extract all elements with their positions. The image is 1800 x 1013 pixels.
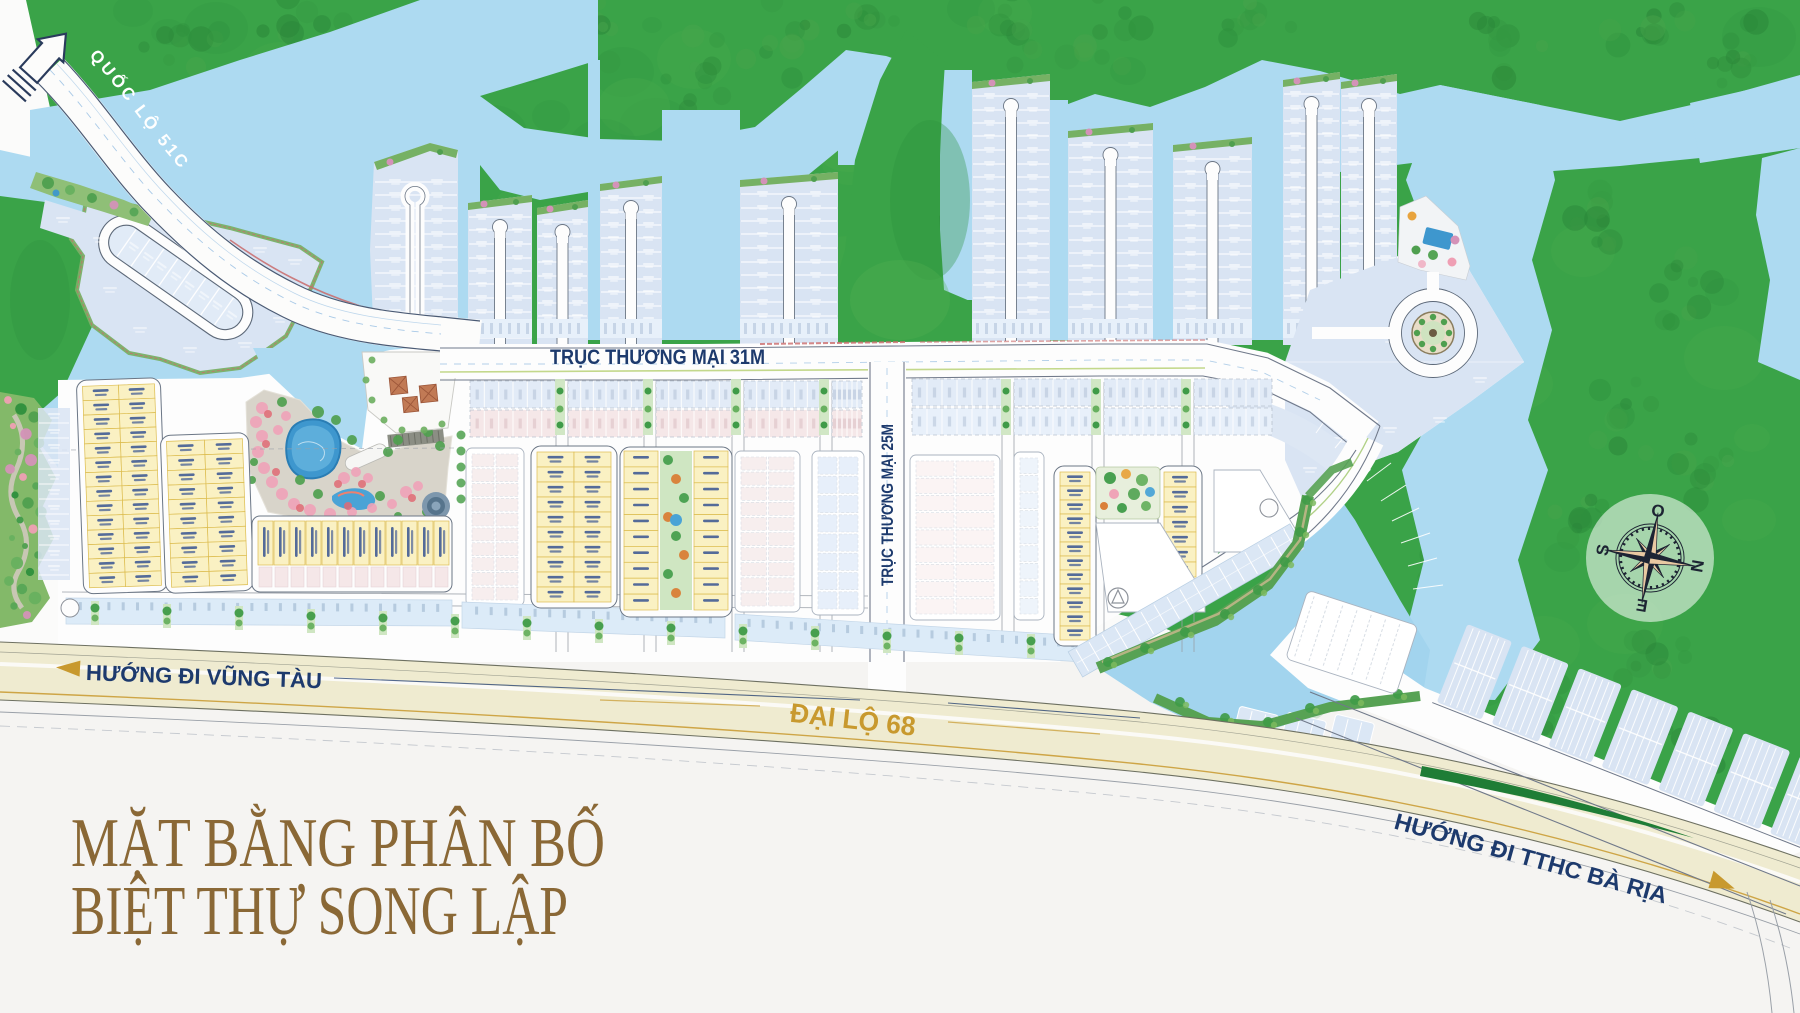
svg-text:TRỤC THƯƠNG MẠI 31M: TRỤC THƯƠNG MẠI 31M bbox=[550, 346, 765, 369]
svg-text:TRỤC THƯƠNG MẠI 25M: TRỤC THƯƠNG MẠI 25M bbox=[878, 424, 897, 586]
svg-text:MẶT BẰNG PHÂN BỐ: MẶT BẰNG PHÂN BỐ bbox=[71, 803, 605, 882]
svg-text:BIỆT THỰ SONG LẬP: BIỆT THỰ SONG LẬP bbox=[71, 873, 568, 950]
